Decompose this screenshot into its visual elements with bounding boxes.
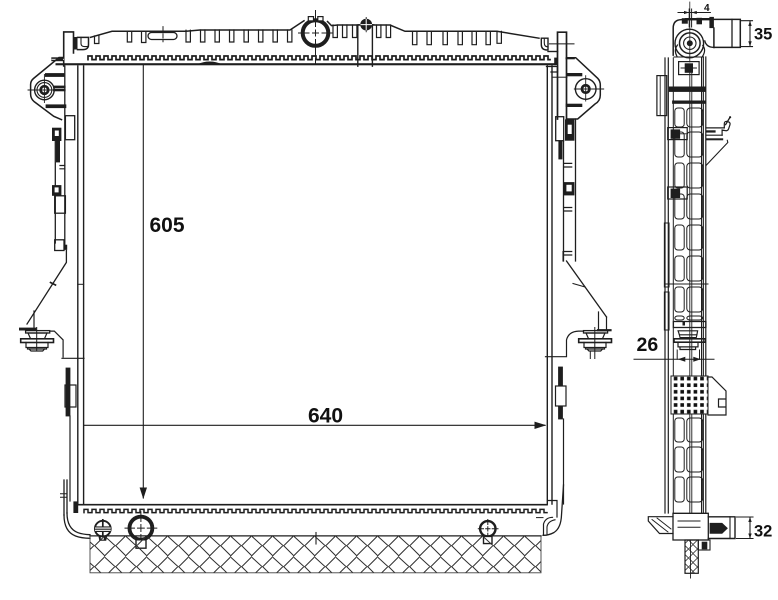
svg-text:26: 26	[637, 334, 659, 356]
svg-text:640: 640	[308, 405, 343, 428]
svg-text:4: 4	[704, 3, 710, 14]
svg-text:605: 605	[150, 214, 185, 237]
svg-text:32: 32	[754, 523, 772, 541]
svg-text:35: 35	[754, 26, 772, 44]
